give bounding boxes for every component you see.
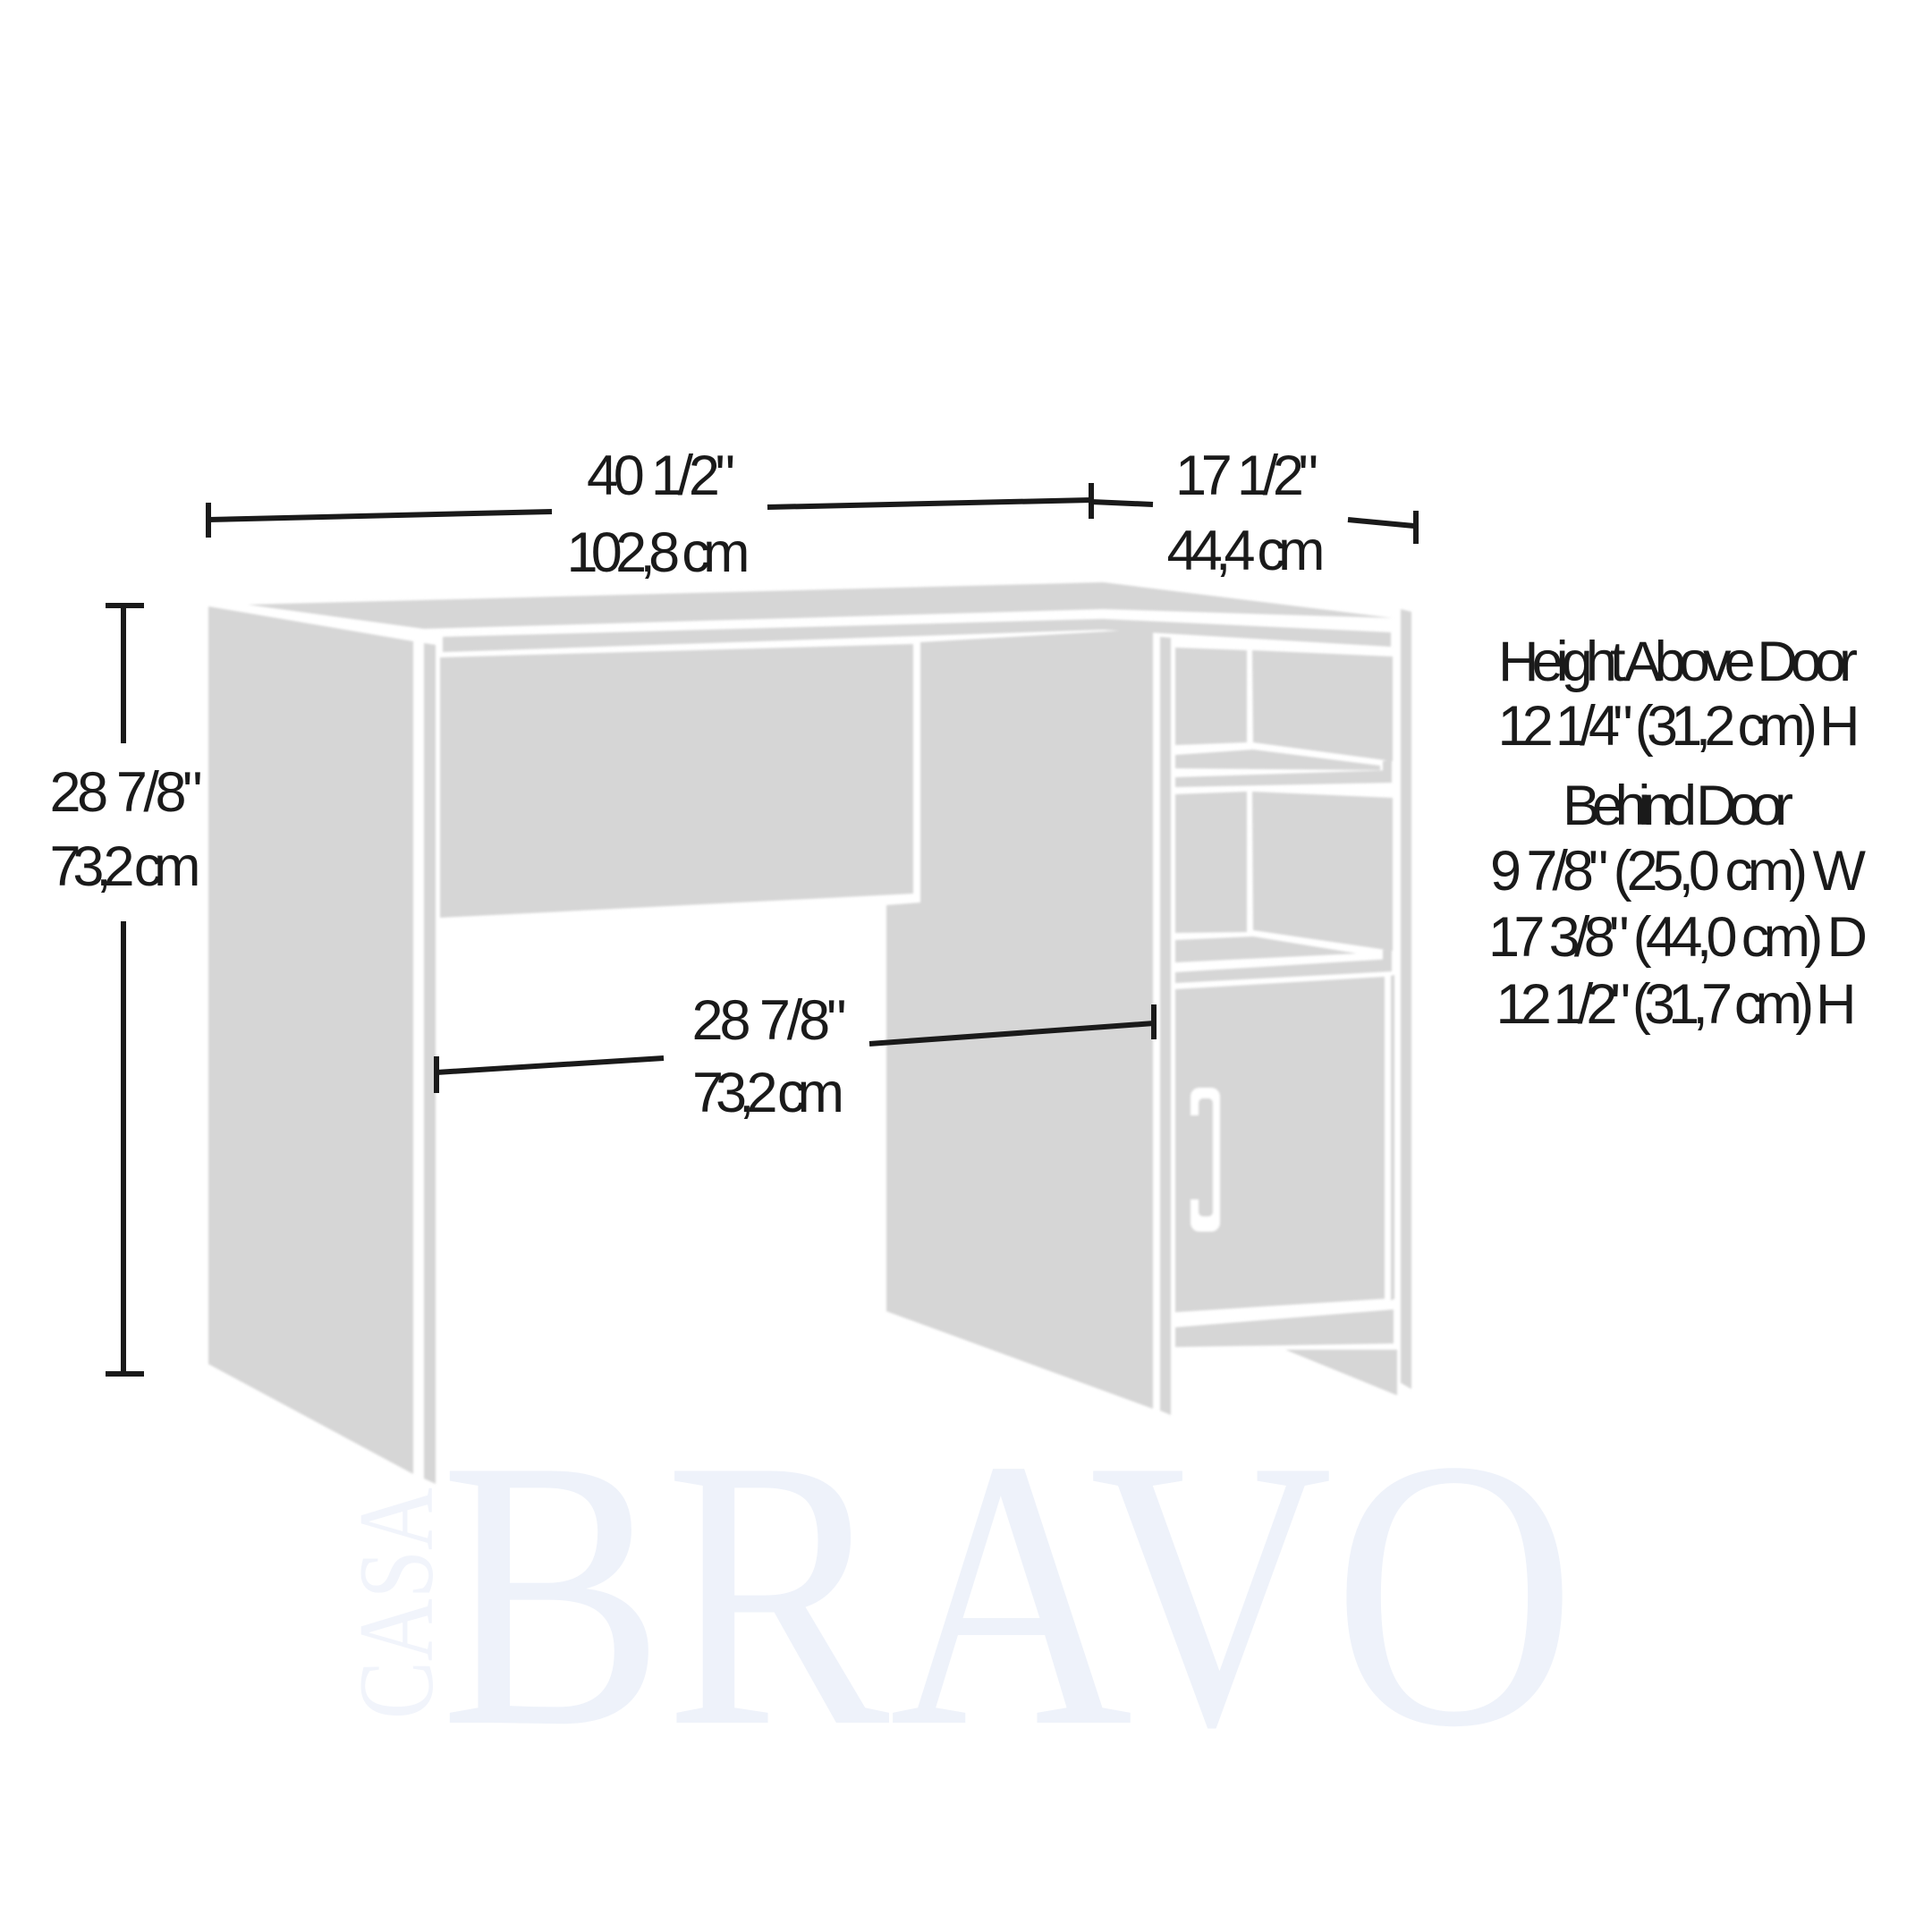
svg-text:Height Above Door: Height Above Door — [1498, 631, 1858, 693]
svg-text:12 1/4" (31,2 cm) H: 12 1/4" (31,2 cm) H — [1498, 695, 1860, 758]
svg-text:28 7/8": 28 7/8" — [692, 989, 847, 1052]
svg-text:CASA: CASA — [336, 1487, 455, 1719]
svg-text:73,2 cm: 73,2 cm — [692, 1062, 844, 1124]
svg-text:40 1/2": 40 1/2" — [587, 445, 735, 507]
svg-text:17 3/8" (44,0 cm) D: 17 3/8" (44,0 cm) D — [1488, 906, 1868, 969]
svg-text:28 7/8": 28 7/8" — [50, 761, 203, 824]
svg-text:Behind Door: Behind Door — [1563, 775, 1793, 837]
svg-text:44,4 cm: 44,4 cm — [1167, 520, 1326, 582]
svg-text:73,2 cm: 73,2 cm — [50, 835, 201, 898]
svg-text:BRAVO: BRAVO — [440, 1381, 1576, 1807]
svg-text:9 7/8" (25,0 cm) W: 9 7/8" (25,0 cm) W — [1490, 840, 1867, 902]
svg-text:102,8 cm: 102,8 cm — [567, 521, 750, 584]
svg-text:17 1/2": 17 1/2" — [1175, 445, 1318, 507]
svg-text:12 1/2" (31,7 cm) H: 12 1/2" (31,7 cm) H — [1496, 973, 1857, 1036]
